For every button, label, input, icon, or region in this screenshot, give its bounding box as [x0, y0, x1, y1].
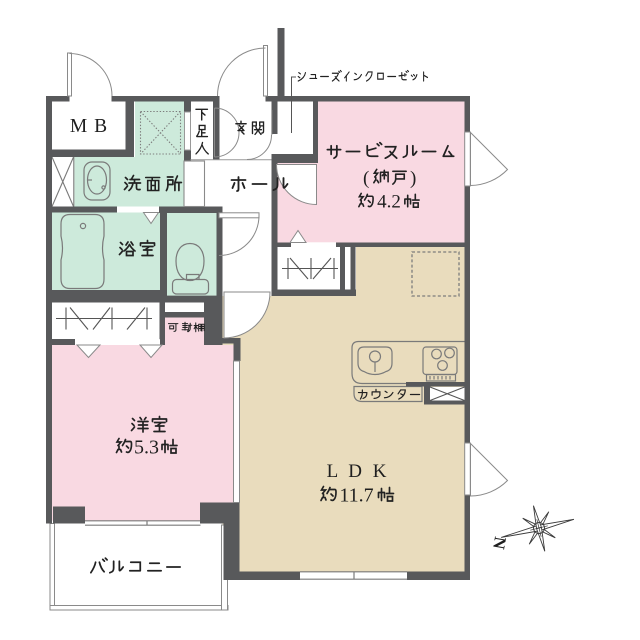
svg-text:L D K: L D K — [327, 461, 390, 482]
svg-text:M B: M B — [70, 116, 108, 137]
svg-text:5.3: 5.3 — [134, 437, 159, 459]
svg-text:): ) — [410, 168, 416, 189]
svg-text:(: ( — [363, 168, 369, 189]
svg-text:11.7: 11.7 — [339, 485, 373, 507]
svg-text:4.2: 4.2 — [377, 192, 401, 213]
